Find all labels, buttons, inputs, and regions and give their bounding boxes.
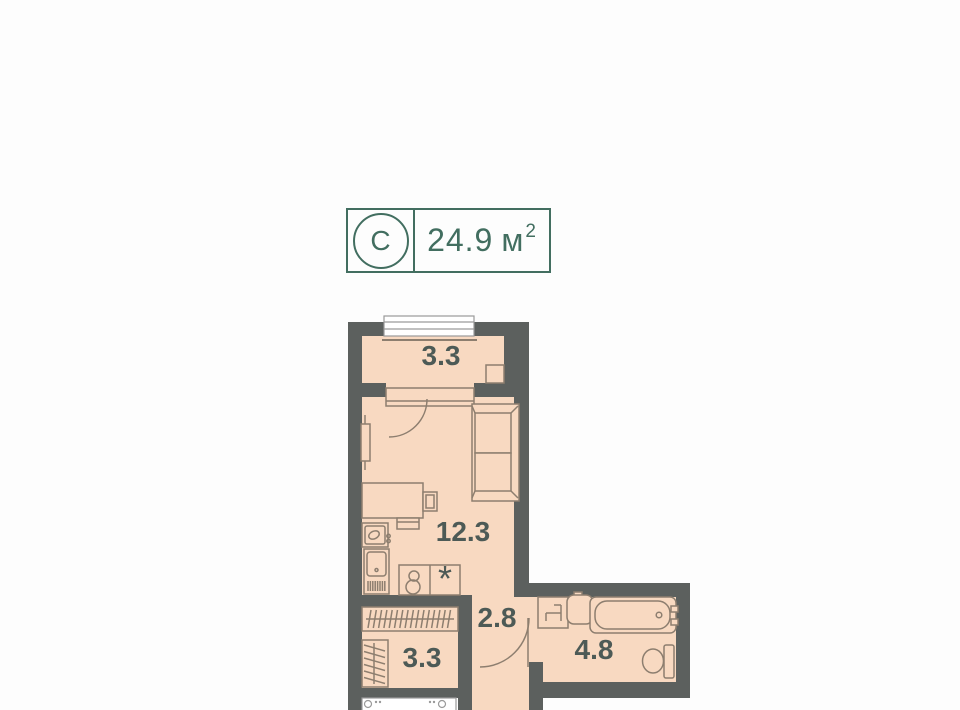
wall-divider-right bbox=[474, 383, 529, 397]
kitchen-sink-icon bbox=[362, 523, 390, 547]
radiator-icon bbox=[361, 415, 370, 470]
washing-machine-spot-icon: * bbox=[438, 558, 452, 599]
window-icon bbox=[384, 316, 474, 336]
bathroom-area-label: 4.8 bbox=[575, 634, 614, 665]
floorplan-drawing: * bbox=[0, 0, 960, 710]
wall-door-jamb bbox=[529, 662, 543, 710]
bathtub-icon bbox=[590, 597, 678, 633]
entry-fixture-icon bbox=[362, 698, 456, 710]
washer-hookup-icon bbox=[538, 597, 568, 628]
wall-bath-bottom bbox=[529, 682, 690, 698]
balcony-cabinet bbox=[486, 365, 504, 383]
chair-icon bbox=[423, 492, 437, 511]
bath-sink-icon bbox=[567, 592, 593, 624]
wall-bath-top bbox=[514, 583, 690, 597]
living-area-label: 12.3 bbox=[436, 516, 491, 547]
wardrobe-rail-vertical-icon bbox=[362, 640, 388, 687]
balcony-area-label: 3.3 bbox=[422, 340, 461, 371]
floorplan-card: С 24.9 м 2 bbox=[0, 0, 960, 710]
wardrobe-rail-icon bbox=[362, 607, 458, 631]
sofa-icon bbox=[472, 404, 519, 501]
wall-wardrobe-right bbox=[458, 595, 472, 710]
wall-bath-right bbox=[676, 583, 690, 698]
wardrobe-area-label: 3.3 bbox=[403, 642, 442, 673]
corridor-area-label: 2.8 bbox=[478, 602, 517, 633]
wall-divider-left bbox=[348, 383, 386, 397]
wall-balcony-right bbox=[504, 336, 529, 383]
wall-left bbox=[348, 322, 362, 710]
kitchen-unit-icon bbox=[364, 549, 389, 594]
wall-wardrobe-bottom bbox=[348, 688, 458, 698]
